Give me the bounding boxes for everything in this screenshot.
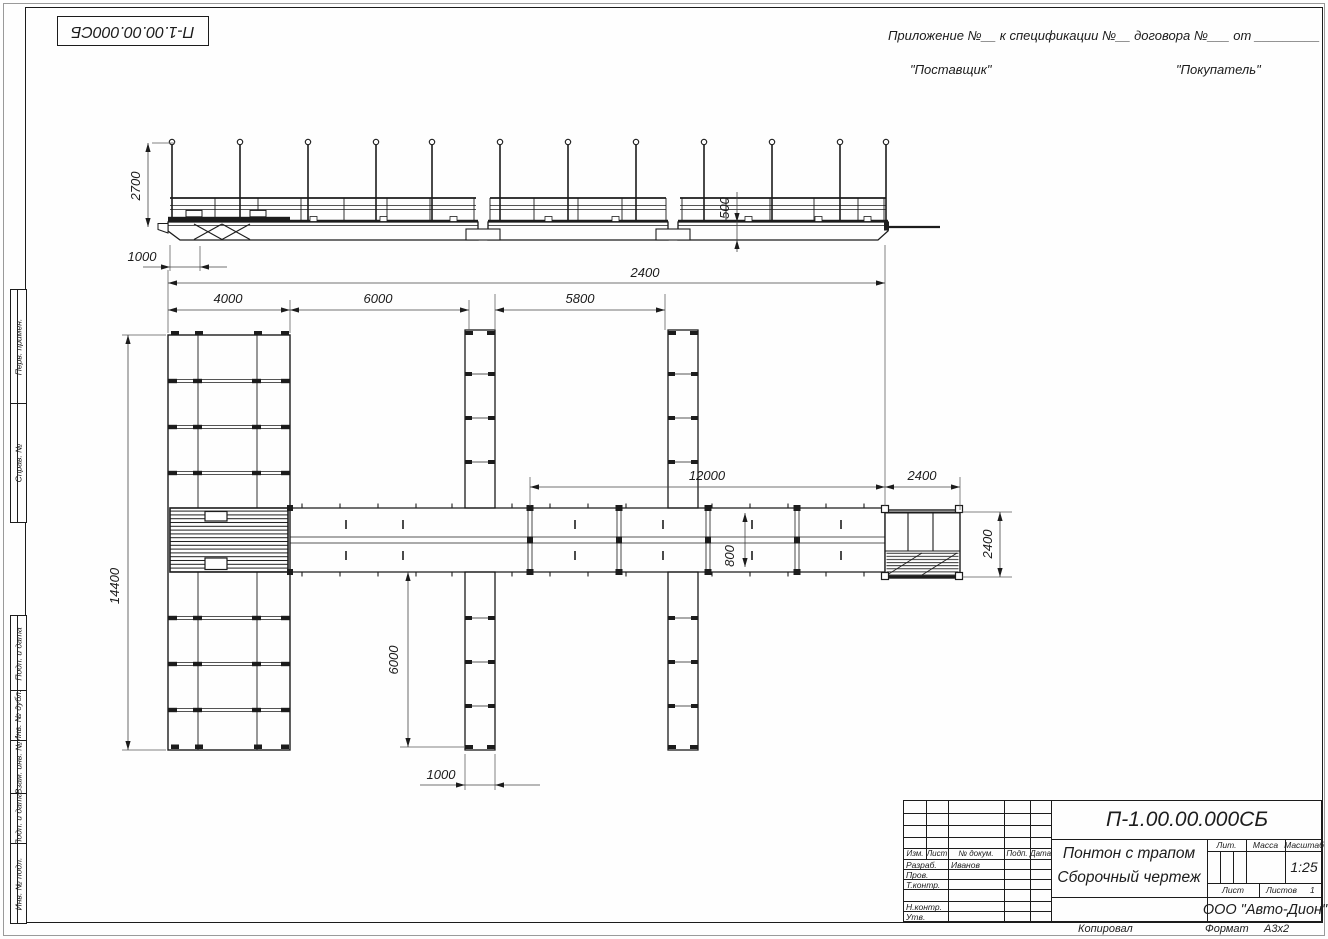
finger-piers: [465, 330, 698, 750]
dim-label-6000-bottom: 6000: [386, 645, 401, 675]
title-block: Изм. Лист № докум. Подп. Дата Разраб. Ив…: [903, 800, 1322, 922]
plan-view: [168, 330, 963, 750]
shore-platform: [882, 506, 963, 580]
listov-label: Листов: [1266, 885, 1297, 895]
pontoon-drawing: 2700 1000 500 2400 4000 6000 5800 12000 …: [0, 0, 1328, 939]
drawing-sheet: П-1.00.00.000СБ Приложение №__ к специфи…: [0, 0, 1328, 939]
row-nkontr: Н.контр.: [906, 902, 942, 912]
tb-title-1: Понтон с трапом: [1051, 841, 1207, 867]
dim-label-2700: 2700: [128, 171, 143, 202]
col-doc: № докум.: [948, 848, 1004, 859]
massa-label: Масса: [1246, 839, 1285, 851]
col-podp: Подп.: [1004, 848, 1030, 859]
col-izm: Изм.: [904, 848, 926, 859]
listov-value: 1: [1310, 885, 1315, 895]
ramp-side-view: [168, 217, 290, 222]
dim-label-2400-platform: 2400: [980, 529, 995, 560]
row-prov: Пров.: [906, 870, 928, 880]
row-utv: Утв.: [906, 912, 925, 922]
col-list: Лист: [926, 848, 948, 859]
dim-label-1000-bottom: 1000: [427, 767, 457, 782]
tb-doc-number: П-1.00.00.000СБ: [1051, 801, 1323, 839]
elevation-view: [158, 139, 940, 240]
format-value: А3х2: [1264, 923, 1289, 935]
col-data: Дата: [1030, 848, 1051, 859]
dim-label-2400-right: 2400: [907, 468, 938, 483]
scale-value: 1:25: [1285, 851, 1323, 883]
dim-label-4000: 4000: [214, 291, 244, 306]
list-label: Лист: [1207, 883, 1259, 897]
row-tkontr: Т.контр.: [906, 880, 940, 890]
dim-label-12000: 12000: [689, 468, 726, 483]
masshtab-label: Масштаб: [1285, 839, 1323, 851]
format-label: Формат: [1205, 923, 1249, 935]
dim-label-5800: 5800: [566, 291, 596, 306]
company-name: ООО "Авто-Дион": [1207, 897, 1323, 923]
dim-label-800: 800: [722, 544, 737, 566]
dim-label-2400-total: 2400: [630, 265, 661, 280]
razrab-name: Иванов: [951, 860, 980, 870]
dim-label-500: 500: [717, 196, 732, 218]
copied-label: Копировал: [1078, 923, 1133, 935]
mooring-posts: [169, 139, 888, 221]
central-walkway: [287, 504, 885, 577]
dim-label-1000-elev: 1000: [128, 249, 158, 264]
dim-label-14400: 14400: [107, 567, 122, 604]
lit-label: Лит.: [1207, 839, 1246, 851]
tb-title-2: Сборочный чертеж: [1051, 865, 1207, 891]
row-razrab: Разраб.: [906, 860, 937, 870]
pier-ramp-hatched: [170, 508, 288, 572]
dim-label-6000-top: 6000: [364, 291, 394, 306]
